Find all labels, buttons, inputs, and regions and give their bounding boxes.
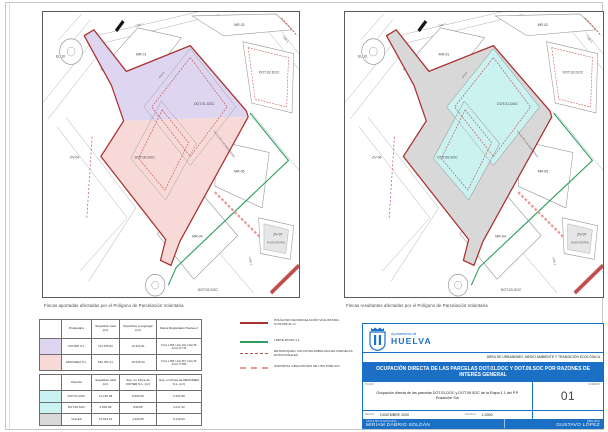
numero-label: NÚMERO bbox=[588, 383, 600, 386]
cell-descirea: 9.219,60 bbox=[157, 414, 202, 426]
table-header-row: Parcela Superficie total (m²) Sup. en Fi… bbox=[40, 375, 202, 391]
plan-sheet: MR-01 MR-02 DOT.02.DOC DOT.01.DOC DOT.09… bbox=[5, 2, 603, 430]
swatch-viales bbox=[40, 414, 62, 426]
cell-descirea: 4.017,22 bbox=[157, 402, 202, 414]
col-superficie-total: Superficie total (m²) bbox=[92, 375, 120, 391]
legend: POLÍGONO DE PARCELACIÓN VOLUNTARIA. S=32… bbox=[240, 319, 358, 376]
plano-cell: PLANO Ocupación directa de las parcelas … bbox=[363, 382, 533, 409]
title-block-middle: PLANO Ocupación directa de las parcelas … bbox=[363, 382, 603, 409]
escala-label: ESCALA bbox=[465, 413, 476, 416]
cell-total: 14.195,08 bbox=[92, 391, 120, 403]
plano-text: Ocupación directa de las parcelas DOT.01… bbox=[371, 391, 524, 400]
map-fincas-aportadas bbox=[42, 11, 300, 298]
title-block-header: Ayuntamiento de HUELVA bbox=[363, 324, 603, 353]
cell-parcela: DOT.01.DOC bbox=[62, 391, 92, 403]
swatch-cioter bbox=[40, 339, 62, 355]
legend-item-soportal: SOPORTAL OBLIGATORIO DE USO PÚBLICO bbox=[240, 365, 358, 370]
table-row: VIALES 13.623,15 4.403,55 9.219,60 bbox=[40, 414, 202, 426]
cell-parcela: DOT.09.SOC bbox=[62, 402, 92, 414]
arquitecta-name: MIRIAM DABRIO SOLDÁN bbox=[366, 423, 504, 428]
col-sup-descirea: Sup. en Finca de DESCIREA S.L. (m²) bbox=[157, 375, 202, 391]
cell-segregar: 14.344,91 bbox=[120, 339, 157, 355]
swatch-header bbox=[40, 320, 62, 339]
table-row: DESCIREA S.L. 640.351,31 16.636,40 Tomo … bbox=[40, 355, 202, 371]
cell-total: 4.863,08 bbox=[92, 402, 120, 414]
cell-total: 640.351,31 bbox=[92, 355, 120, 371]
numero-cell: NÚMERO 01 bbox=[533, 382, 603, 409]
legend-label: POLÍGONO DE PARCELACIÓN VOLUNTARIA. S=32… bbox=[274, 319, 356, 327]
solid-red-line-swatch bbox=[240, 322, 268, 324]
dashed-red-line-swatch bbox=[240, 353, 268, 354]
fecha-label: FECHA bbox=[365, 413, 374, 416]
solid-green-line-swatch bbox=[240, 341, 268, 343]
cell-cioter: 8.992,50 bbox=[120, 391, 157, 403]
col-sup-cioter: Sup. en Finca de CIOTER S.L. (m²) bbox=[120, 375, 157, 391]
swatch-dot01 bbox=[40, 391, 62, 403]
cell-total: 114.979,26 bbox=[92, 339, 120, 355]
swatch-descirea bbox=[40, 355, 62, 371]
huelva-shield-icon bbox=[368, 326, 387, 351]
arquitecta-cell: ARQUITECTA MUNICIPAL MIRIAM DABRIO SOLDÁ… bbox=[363, 419, 505, 428]
huelva-logo: Ayuntamiento de HUELVA bbox=[368, 326, 432, 351]
title-banner: OCUPACIÓN DIRECTA DE LAS PARCELAS DOT.01… bbox=[363, 362, 603, 382]
legend-item-poligono: POLÍGONO DE PARCELACIÓN VOLUNTARIA. S=32… bbox=[240, 319, 358, 327]
caption-fincas-aportadas: Fincas aportadas afectadas por el Polígo… bbox=[44, 303, 184, 308]
names-bar: ARQUITECTA MUNICIPAL MIRIAM DABRIO SOLDÁ… bbox=[363, 419, 603, 428]
table-header-row: Propietario Superficie total (m²) Superf… bbox=[40, 320, 202, 339]
swatch-dot09 bbox=[40, 402, 62, 414]
numero-cell-lower bbox=[533, 411, 603, 419]
map-fincas-resultantes bbox=[344, 11, 604, 298]
dashed-pink-line-swatch bbox=[240, 367, 268, 369]
cell-total: 13.623,15 bbox=[92, 414, 120, 426]
title-block: Ayuntamiento de HUELVA ÁREA DE URBANISMO… bbox=[362, 323, 604, 429]
cell-registro: Tomo 1.955, Libro 957, Folio 66, Finca 7… bbox=[157, 355, 202, 371]
cell-registro: Tomo 1.805, Libro 202, Folio 58, Finca 4… bbox=[157, 339, 202, 355]
table-fincas-aportadas: Propietario Superficie total (m²) Superf… bbox=[39, 319, 202, 371]
legend-label: SOPORTAL OBLIGATORIO DE USO PÚBLICO bbox=[274, 365, 356, 369]
col-datos-registrales: Datos Registrales Huelva-2 bbox=[157, 320, 202, 339]
plano-label: PLANO bbox=[365, 383, 374, 386]
table-row: CIOTER S.L. 114.979,26 14.344,91 Tomo 1.… bbox=[40, 339, 202, 355]
legend-item-retranqueo: RETRANQUEO CON ZONA ARBOLADA EN PARCELAS… bbox=[240, 350, 358, 358]
escala-value: 1:2000 bbox=[482, 413, 493, 417]
cell-propietario: CIOTER S.L. bbox=[62, 339, 92, 355]
col-superficie-segregar: Superficie a segregar (m²) bbox=[120, 320, 157, 339]
table-parcelas-resultantes: Parcela Superficie total (m²) Sup. en Fi… bbox=[39, 374, 202, 426]
plan-number: 01 bbox=[561, 389, 575, 403]
table-row: DOT.01.DOC 14.195,08 8.992,50 5.202,58 bbox=[40, 391, 202, 403]
col-propietario: Propietario bbox=[62, 320, 92, 339]
area-label: ÁREA DE URBANISMO, MEDIO AMBIENTE Y TRAN… bbox=[363, 353, 603, 362]
cell-segregar: 16.636,40 bbox=[120, 355, 157, 371]
dibujado-cell: DIBUJADO GUSTAVO LÓPEZ bbox=[505, 419, 603, 428]
fecha-escala-row: FECHA DICIEMBRE 2020 ESCALA 1:2000 bbox=[363, 410, 603, 419]
swatch-header bbox=[40, 375, 62, 391]
org-big-text: HUELVA bbox=[391, 336, 432, 346]
cell-descirea: 5.202,58 bbox=[157, 391, 202, 403]
escala-cell: ESCALA 1:2000 bbox=[463, 411, 533, 419]
cell-cioter: 845,86 bbox=[120, 402, 157, 414]
cell-propietario: DESCIREA S.L. bbox=[62, 355, 92, 371]
legend-item-limite: LÍMITE ETAPA 1.1 bbox=[240, 339, 358, 344]
caption-fincas-resultantes: Fincas resultantes afectadas por el Polí… bbox=[346, 303, 488, 308]
col-parcela: Parcela bbox=[62, 375, 92, 391]
cell-parcela: VIALES bbox=[62, 414, 92, 426]
fecha-value: DICIEMBRE 2020 bbox=[380, 413, 409, 417]
org-name: Ayuntamiento de HUELVA bbox=[391, 332, 432, 346]
col-superficie-total: Superficie total (m²) bbox=[92, 320, 120, 339]
cell-cioter: 4.403,55 bbox=[120, 414, 157, 426]
legend-label: RETRANQUEO CON ZONA ARBOLADA EN PARCELAS… bbox=[274, 350, 356, 358]
dibujado-name: GUSTAVO LÓPEZ bbox=[508, 423, 600, 428]
table-row: DOT.09.SOC 4.863,08 845,86 4.017,22 bbox=[40, 402, 202, 414]
legend-label: LÍMITE ETAPA 1.1 bbox=[274, 339, 356, 343]
fecha-cell: FECHA DICIEMBRE 2020 bbox=[363, 411, 463, 419]
